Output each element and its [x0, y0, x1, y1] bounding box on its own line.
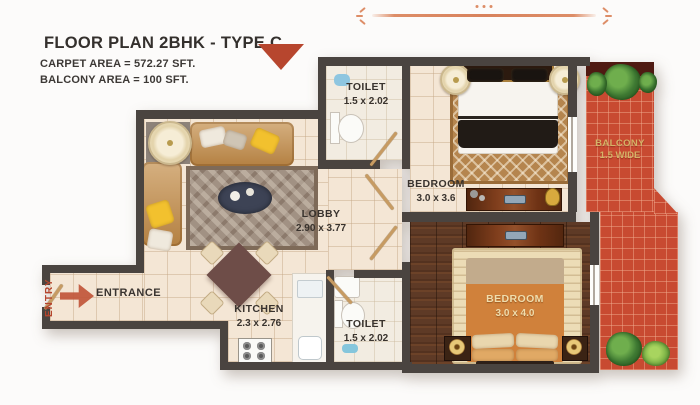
stove: [238, 338, 272, 364]
room-label-kitchen: KITCHEN 2.3 x 2.76: [226, 303, 292, 330]
floor-plan-page: FLOOR PLAN 2BHK - TYPE C CARPET AREA = 5…: [0, 0, 700, 405]
deer-trophy: [546, 189, 559, 205]
wall-bedrooms-divider: [402, 212, 576, 222]
bed-pillow: [472, 349, 514, 361]
plant-icon: [603, 64, 641, 100]
plant-icon: [639, 72, 657, 93]
coffee-table: [218, 182, 272, 214]
wall-top: [318, 57, 590, 66]
wall-entrance-bottom: [42, 321, 228, 329]
bedroom-bottom-window: [590, 265, 599, 305]
burner: [243, 352, 251, 360]
wall-bedroom-bottom-right-a: [590, 212, 599, 265]
bed-pillow-dark: [511, 68, 548, 82]
dish: [246, 188, 254, 196]
nightstand-lamp: [449, 339, 465, 355]
kitchen-basin: [298, 336, 322, 360]
kitchen-sink: [297, 280, 323, 298]
wall-toilet-bedroom-divider: [402, 57, 410, 169]
wall-bedroom-top-right-b: [568, 172, 577, 212]
burner: [243, 342, 251, 350]
dish: [230, 191, 240, 201]
dresser-handle: [505, 231, 527, 240]
room-label-bedroom-bottom: BEDROOM 3.0 x 4.0: [466, 293, 564, 320]
bed-pillow-dark: [467, 68, 504, 82]
dresser-handle: [504, 195, 526, 204]
room-label-lobby: LOBBY 2.90 x 3.77: [290, 208, 352, 235]
plant-icon: [606, 332, 642, 366]
balcony-corner: [654, 188, 678, 214]
wall-kitchen-bottom: [220, 362, 412, 370]
bed-pillow: [472, 333, 515, 349]
lobby-lamp: [148, 121, 192, 165]
bath-mat: [342, 344, 358, 353]
burner: [257, 352, 265, 360]
decor-vase: [479, 195, 485, 201]
entry-label: ENTRY: [44, 270, 58, 326]
plant-icon: [587, 72, 607, 96]
bed-pillow: [516, 349, 558, 361]
sofa-pillow: [146, 228, 173, 252]
floor-plan: TOILET 1.5 x 2.02 BEDROOM 3.0 x 3.6 BALC…: [0, 0, 700, 405]
kitchen-counter: [292, 273, 328, 364]
wall-lobby-left: [136, 110, 144, 273]
decor-vase: [470, 190, 478, 198]
entrance-label: ENTRANCE: [96, 287, 166, 299]
burner: [257, 342, 265, 350]
room-label-bedroom-top: BEDROOM 3.0 x 3.6: [406, 178, 466, 205]
plant-icon: [642, 341, 670, 366]
wall-bedroom-top-right-a: [568, 57, 577, 117]
bed-top: [458, 80, 558, 154]
nightstand-lamp: [566, 339, 582, 355]
wall-toilet-bedroom2-divider: [402, 262, 410, 370]
wall-lobby-top: [136, 110, 326, 119]
bedroom-top-window: [568, 117, 577, 172]
wall-bedroom-bottom-bottom: [402, 364, 599, 373]
toilet-top-bowl: [338, 114, 364, 143]
room-label-toilet-bottom: TOILET 1.5 x 2.02: [330, 318, 402, 345]
room-label-balcony: BALCONY 1.5 WIDE: [586, 138, 654, 163]
wall-bedroom-bottom-right-b: [590, 305, 599, 367]
blanket-edge: [458, 116, 558, 119]
bed-pillow: [516, 333, 559, 349]
blanket-dark: [458, 120, 558, 148]
room-label-toilet-top: TOILET 1.5 x 2.02: [330, 81, 402, 108]
